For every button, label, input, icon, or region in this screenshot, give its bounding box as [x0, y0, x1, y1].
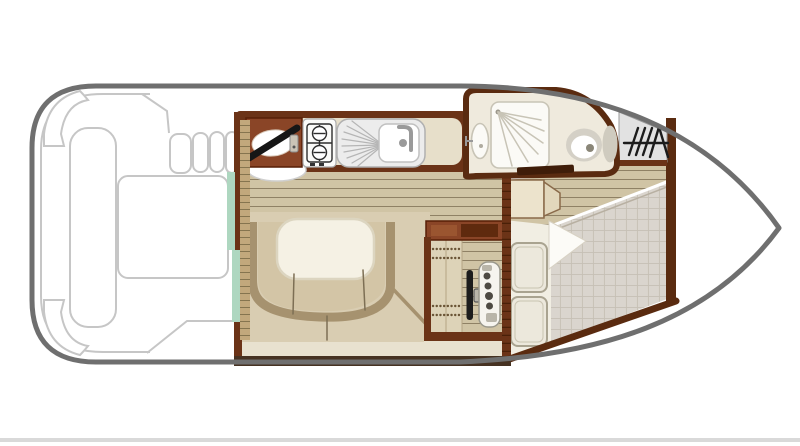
anchor-locker-sill [619, 160, 667, 166]
soap-dispenser-dot [293, 146, 296, 149]
bed-head-wall [502, 178, 511, 362]
steering-wheel [467, 270, 474, 320]
cistern [603, 126, 618, 163]
helm-station [424, 221, 511, 357]
mint-strip-upper [227, 172, 235, 250]
stern-bench [70, 128, 116, 327]
mint-strip-lower [232, 250, 240, 322]
sink-with-drainer [337, 119, 425, 167]
boarding-steps [170, 132, 238, 173]
floorplan-stage [0, 0, 800, 446]
bottom-artifact-band [0, 438, 800, 442]
helm-top-cabinet-panel-right [461, 224, 498, 237]
pillow-bottom [511, 297, 547, 346]
two-burner-hob [303, 119, 336, 167]
dinette-table [277, 219, 374, 279]
soap-dispenser [290, 135, 298, 152]
helm-step [424, 341, 511, 357]
shower [491, 102, 549, 168]
helm-top-cabinet-panel-left [431, 225, 457, 236]
sink-faucet-base [399, 139, 407, 147]
dinette-apron [240, 342, 430, 357]
instrument-console [479, 262, 500, 327]
helm-step-edge [424, 332, 511, 341]
pillow-top [511, 243, 547, 292]
galley [236, 111, 466, 181]
side-rail [240, 120, 250, 340]
wardrobe [506, 180, 544, 218]
engine-hatch [118, 176, 228, 278]
boat-floorplan [0, 0, 800, 446]
